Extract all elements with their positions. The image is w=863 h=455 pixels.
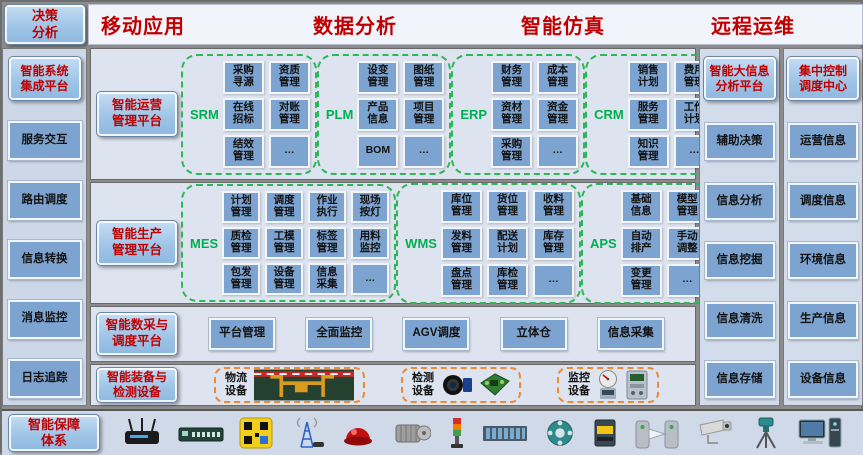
equipment-group: 检测 设备 (401, 367, 521, 403)
module-box: 作业 执行 (308, 191, 346, 223)
equipment-group-label: 检测 设备 (412, 372, 434, 397)
module-box: 在线 招标 (223, 98, 264, 131)
analysis-item: 信息分析 (705, 183, 775, 220)
integration-item: 路由调度 (8, 181, 82, 220)
group-name: APS (590, 236, 617, 251)
module-box: 资金 管理 (537, 98, 578, 131)
control-item: 调度信息 (788, 183, 858, 220)
header-remote-ops: 远程运维 (711, 5, 795, 44)
module-grid: 计划 管理调度 管理作业 执行现场 按灯质检 管理工模 管理标签 管理用料 监控… (222, 191, 389, 295)
safety-sensor-icon (592, 418, 618, 448)
module-box: 现场 按灯 (351, 191, 389, 223)
module-box: 配送 计划 (487, 227, 528, 260)
group-name: MES (190, 236, 218, 251)
equipment-groups: 物流 设备检测 设备监控 设备 (178, 367, 695, 403)
module-box: 自动 排产 (621, 227, 662, 260)
control-item: 运营信息 (788, 123, 858, 160)
big-info-analysis-title: 智能大信息 分析平台 (703, 56, 777, 101)
production-platform-label: 智能生产 管理平台 (96, 220, 178, 266)
top-header-bar: 移动应用 数据分析 智能仿真 远程运维 (88, 4, 863, 45)
module-box: 信息 采集 (308, 263, 346, 295)
daq-item: AGV调度 (403, 318, 469, 350)
equipment-row: 智能装备与 检测设备 物流 设备检测 设备监控 设备 (90, 364, 696, 406)
operations-platform-label: 智能运营 管理平台 (96, 91, 178, 137)
module-box: 服务 管理 (628, 98, 669, 131)
analysis-item: 辅助决策 (705, 123, 775, 160)
module-box: 产品 信息 (357, 98, 398, 131)
central-control-title: 集中控制 调度中心 (786, 56, 860, 101)
gantry-crane-icon (254, 369, 354, 401)
computer-workstation-icon (797, 416, 843, 450)
daq-item: 信息采集 (598, 318, 664, 350)
module-box: 财务 管理 (491, 61, 532, 94)
daq-item: 全面监控 (306, 318, 372, 350)
module-box: 对账 管理 (269, 98, 310, 131)
data-acquisition-label: 智能数采与 调度平台 (96, 312, 178, 356)
device-strip (100, 416, 863, 450)
integration-panel-title: 智能系统 集成平台 (8, 56, 82, 101)
big-info-analysis-panel: 智能大信息 分析平台 辅助决策信息分析信息挖掘信息清洗信息存储 (699, 48, 780, 406)
support-system-title: 智能保障 体系 (8, 414, 100, 452)
module-box: … (269, 135, 310, 168)
module-box: … (351, 263, 389, 295)
alarm-beacon-icon (341, 418, 375, 448)
system-integration-panel: 智能系统 集成平台 服务交互路由调度信息转换消息监控日志追踪 (2, 48, 87, 406)
network-switch-icon (178, 419, 224, 447)
turnstile-gate-icon (634, 417, 680, 449)
cctv-camera-icon (696, 418, 736, 448)
analysis-item: 信息存储 (705, 361, 775, 398)
module-box: 采购 寻源 (223, 61, 264, 94)
module-box: … (533, 264, 574, 297)
daq-item: 立体仓 (501, 318, 567, 350)
control-item: 设备信息 (788, 361, 858, 398)
module-box: 库位 管理 (441, 190, 482, 223)
support-system-bar: 智能保障 体系 (2, 409, 863, 455)
antenna-tower-icon (289, 417, 325, 449)
module-grid: 库位 管理货位 管理收料 管理发料 管理配送 计划库存 管理盘点 管理库检 管理… (441, 190, 574, 297)
module-grid: 财务 管理成本 管理资材 管理资金 管理采购 管理… (491, 61, 578, 168)
equipment-group-label: 物流 设备 (225, 372, 247, 397)
module-box: 工模 管理 (265, 227, 303, 259)
module-box: … (403, 135, 444, 168)
integration-item: 消息监控 (8, 300, 82, 339)
module-box: 设备 管理 (265, 263, 303, 295)
module-box: 库检 管理 (487, 264, 528, 297)
group-name: ERP (460, 107, 487, 122)
group-name: SRM (190, 107, 219, 122)
module-box: 设变 管理 (357, 61, 398, 94)
operations-platform-row: 智能运营 管理平台 SRM采购 寻源资质 管理在线 招标对账 管理结效 管理…P… (90, 48, 696, 180)
module-box: 结效 管理 (223, 135, 264, 168)
wms-group: WMS库位 管理货位 管理收料 管理发料 管理配送 计划库存 管理盘点 管理库检… (396, 183, 581, 304)
header-mobile-app: 移动应用 (101, 5, 185, 44)
module-box: 计划 管理 (222, 191, 260, 223)
mes-group: MES计划 管理调度 管理作业 执行现场 按灯质检 管理工模 管理标签 管理用料… (181, 184, 396, 302)
production-groups: MES计划 管理调度 管理作业 执行现场 按灯质检 管理工模 管理标签 管理用料… (178, 183, 718, 304)
data-acquisition-row: 智能数采与 调度平台 平台管理全面监控AGV调度立体仓信息采集 (90, 306, 696, 362)
group-name: CRM (594, 107, 624, 122)
plm-group: PLM设变 管理图纸 管理产品 信息项目 管理BOM… (317, 54, 451, 175)
integration-item: 服务交互 (8, 121, 82, 160)
module-box: 销售 计划 (628, 61, 669, 94)
module-grid: 基础 信息模型 管理自动 排产手动 调整变更 管理… (621, 190, 708, 297)
equipment-group: 监控 设备 (557, 367, 659, 403)
terminal-blocks-icon (482, 420, 528, 446)
equipment-label: 智能装备与 检测设备 (96, 367, 178, 403)
daq-item: 平台管理 (209, 318, 275, 350)
module-box: 用料 监控 (351, 227, 389, 259)
electric-motor-icon (391, 418, 431, 448)
decision-analysis-box: 决策 分析 (4, 4, 86, 45)
module-box: 质检 管理 (222, 227, 260, 259)
module-box: 标签 管理 (308, 227, 346, 259)
module-box: 知识 管理 (628, 135, 669, 168)
module-box: 资材 管理 (491, 98, 532, 131)
control-item: 环境信息 (788, 242, 858, 279)
header-smart-simulation: 智能仿真 (521, 5, 605, 44)
module-box: 图纸 管理 (403, 61, 444, 94)
module-box: … (537, 135, 578, 168)
integration-item: 信息转换 (8, 240, 82, 279)
stack-light-icon (447, 416, 467, 450)
module-box: 盘点 管理 (441, 264, 482, 297)
aps-group: APS基础 信息模型 管理自动 排产手动 调整变更 管理… (581, 183, 715, 304)
module-grid: 采购 寻源资质 管理在线 招标对账 管理结效 管理… (223, 61, 310, 168)
module-box: 发料 管理 (441, 227, 482, 260)
module-box: 成本 管理 (537, 61, 578, 94)
module-box: 货位 管理 (487, 190, 528, 223)
group-name: WMS (405, 236, 437, 251)
module-box: 采购 管理 (491, 135, 532, 168)
data-acquisition-items: 平台管理全面监控AGV调度立体仓信息采集 (178, 318, 695, 350)
group-name: PLM (326, 107, 353, 122)
module-box: 库存 管理 (533, 227, 574, 260)
gauge-meter-icon (597, 370, 619, 400)
module-box: 变更 管理 (621, 264, 662, 297)
operations-groups: SRM采购 寻源资质 管理在线 招标对账 管理结效 管理…PLM设变 管理图纸 … (178, 54, 725, 175)
analysis-item: 信息清洗 (705, 302, 775, 339)
module-box: 基础 信息 (621, 190, 662, 223)
energy-meter-icon (626, 370, 648, 400)
srm-group: SRM采购 寻源资质 管理在线 招标对账 管理结效 管理… (181, 54, 317, 175)
equipment-group-label: 监控 设备 (568, 372, 590, 397)
module-box: 资质 管理 (269, 61, 310, 94)
inspection-camera-icon (441, 372, 473, 398)
central-control-panel: 集中控制 调度中心 运营信息调度信息环境信息生产信息设备信息 (783, 48, 863, 406)
module-box: 项目 管理 (403, 98, 444, 131)
circuit-board-icon (480, 373, 510, 397)
wireless-router-icon (122, 417, 162, 449)
module-box: 包发 管理 (222, 263, 260, 295)
equipment-group: 物流 设备 (214, 367, 365, 403)
integration-item: 日志追踪 (8, 359, 82, 398)
analysis-item: 信息挖掘 (705, 242, 775, 279)
header-data-analysis: 数据分析 (313, 5, 397, 44)
module-grid: 设变 管理图纸 管理产品 信息项目 管理BOM… (357, 61, 444, 168)
survey-instrument-icon (751, 416, 781, 450)
module-box: 调度 管理 (265, 191, 303, 223)
production-platform-row: 智能生产 管理平台 MES计划 管理调度 管理作业 执行现场 按灯质检 管理工模… (90, 182, 696, 304)
module-box: BOM (357, 135, 398, 168)
erp-group: ERP财务 管理成本 管理资材 管理资金 管理采购 管理… (451, 54, 585, 175)
qr-scanner-icon (239, 417, 273, 449)
rotary-encoder-icon (544, 418, 576, 448)
control-item: 生产信息 (788, 302, 858, 339)
module-box: 收料 管理 (533, 190, 574, 223)
